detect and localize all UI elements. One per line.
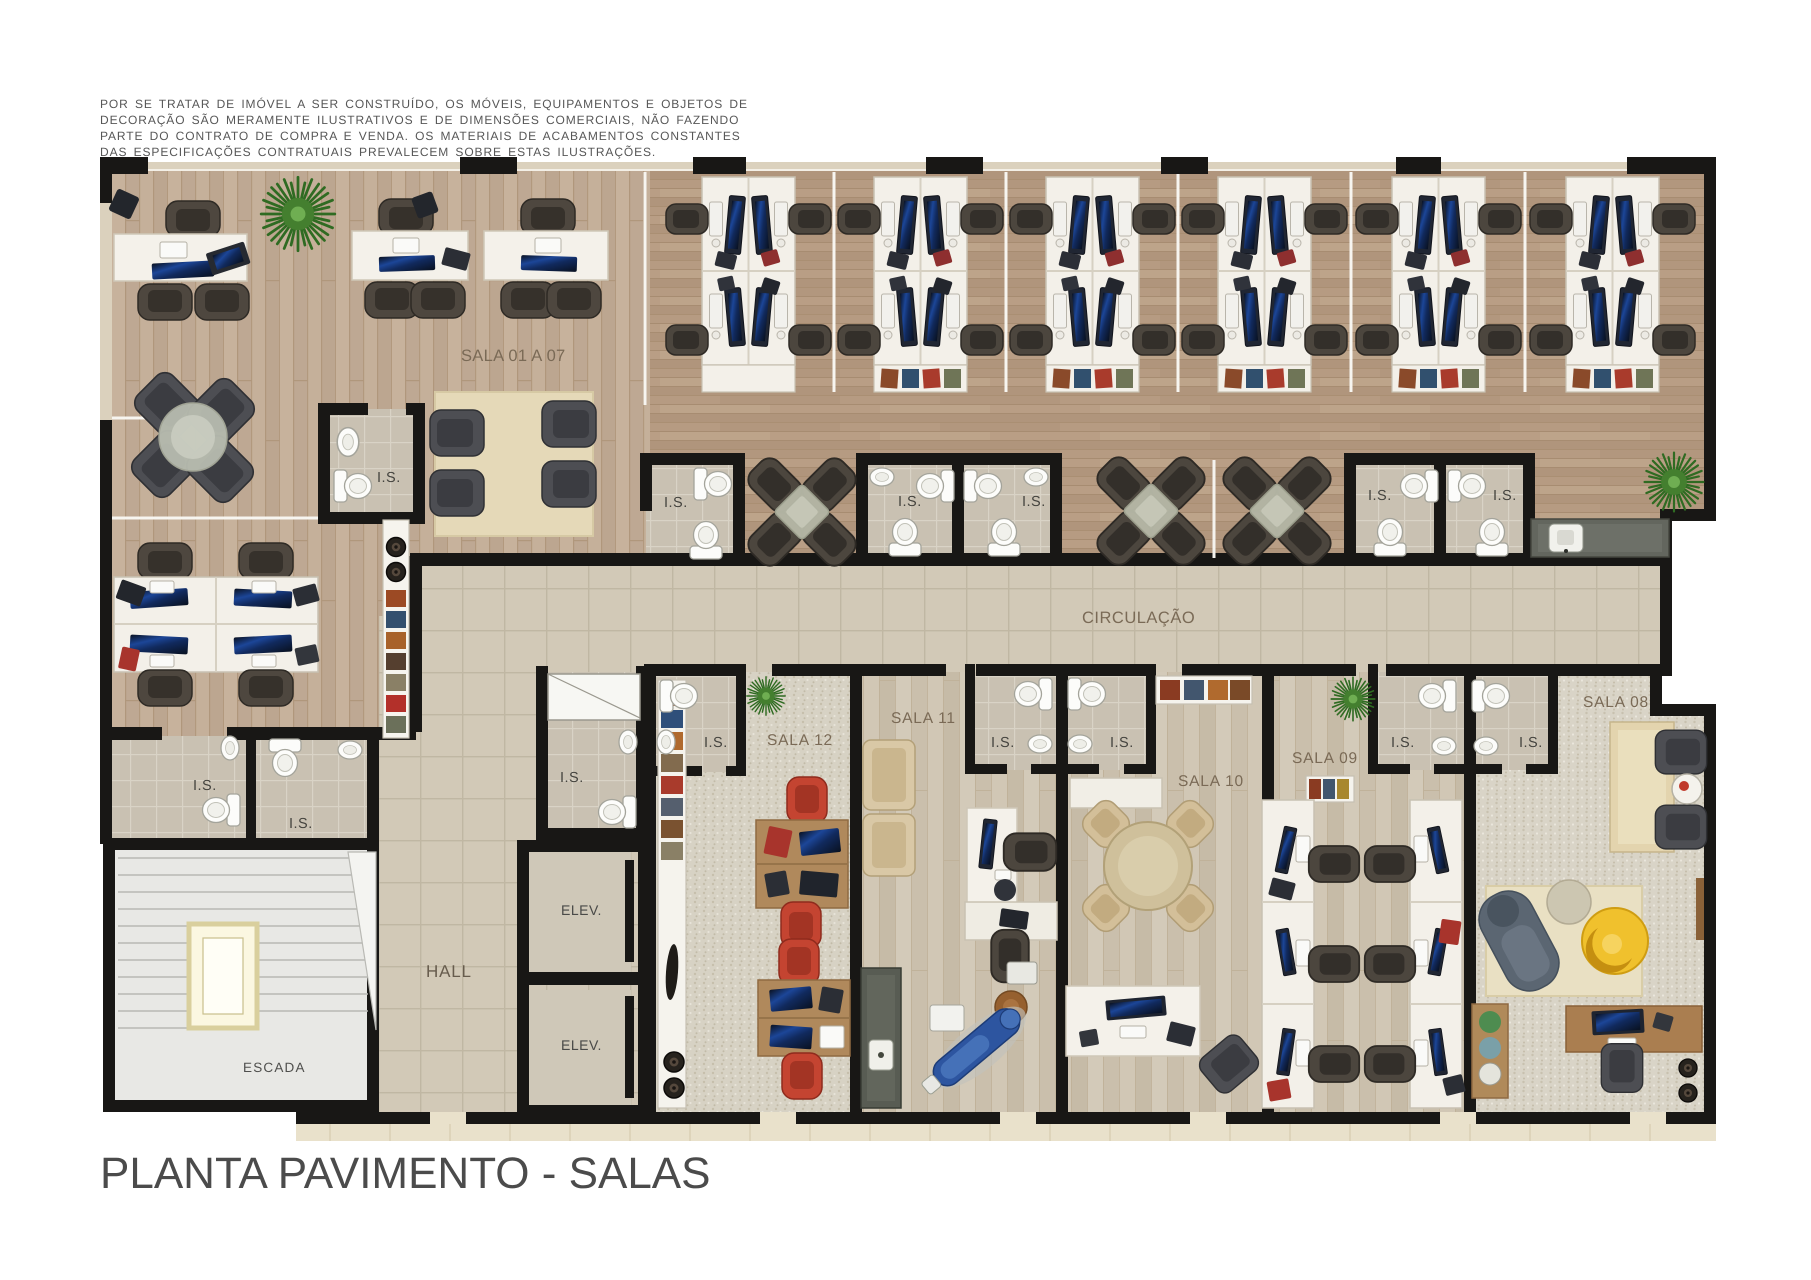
svg-text:SALA 01 A 07: SALA 01 A 07 <box>461 347 566 365</box>
svg-text:SALA 11: SALA 11 <box>891 710 956 727</box>
svg-text:ESCADA: ESCADA <box>243 1060 306 1075</box>
svg-text:I.S.: I.S. <box>289 816 313 832</box>
svg-text:I.S.: I.S. <box>664 495 688 511</box>
svg-text:I.S.: I.S. <box>1519 735 1543 751</box>
svg-text:I.S.: I.S. <box>1110 735 1134 751</box>
svg-text:I.S.: I.S. <box>560 770 584 786</box>
svg-text:ELEV.: ELEV. <box>561 902 602 918</box>
svg-text:I.S.: I.S. <box>1493 488 1517 504</box>
svg-text:I.S.: I.S. <box>898 494 922 510</box>
svg-text:CIRCULAÇÃO: CIRCULAÇÃO <box>1082 608 1195 627</box>
svg-text:I.S.: I.S. <box>704 735 728 751</box>
svg-text:ELEV.: ELEV. <box>561 1037 602 1053</box>
svg-text:DAS ESPECIFICAÇÕES CONTRATUAIS: DAS ESPECIFICAÇÕES CONTRATUAIS PREVALECE… <box>100 145 656 159</box>
svg-text:POR SE TRATAR DE IMÓVEL A SER: POR SE TRATAR DE IMÓVEL A SER CONSTRUÍDO… <box>100 97 748 111</box>
svg-text:SALA 12: SALA 12 <box>767 732 833 749</box>
svg-text:I.S.: I.S. <box>377 470 401 486</box>
svg-text:SALA 09: SALA 09 <box>1292 750 1358 767</box>
svg-text:SALA 08: SALA 08 <box>1583 694 1649 711</box>
svg-text:PLANTA PAVIMENTO - SALAS: PLANTA PAVIMENTO - SALAS <box>100 1149 710 1198</box>
svg-text:HALL: HALL <box>426 962 472 981</box>
svg-text:I.S.: I.S. <box>991 735 1015 751</box>
svg-text:PARTE DO CONTRATO DE COMPRA E: PARTE DO CONTRATO DE COMPRA E VENDA. OS … <box>100 129 741 143</box>
svg-text:I.S.: I.S. <box>193 778 217 794</box>
svg-text:SALA 10: SALA 10 <box>1178 773 1244 790</box>
svg-text:DECORAÇÃO SÃO MERAMENTE ILUSTR: DECORAÇÃO SÃO MERAMENTE ILUSTRATIVOS E D… <box>100 113 739 127</box>
svg-text:I.S.: I.S. <box>1391 735 1415 751</box>
svg-text:I.S.: I.S. <box>1022 494 1046 510</box>
svg-text:I.S.: I.S. <box>1368 488 1392 504</box>
